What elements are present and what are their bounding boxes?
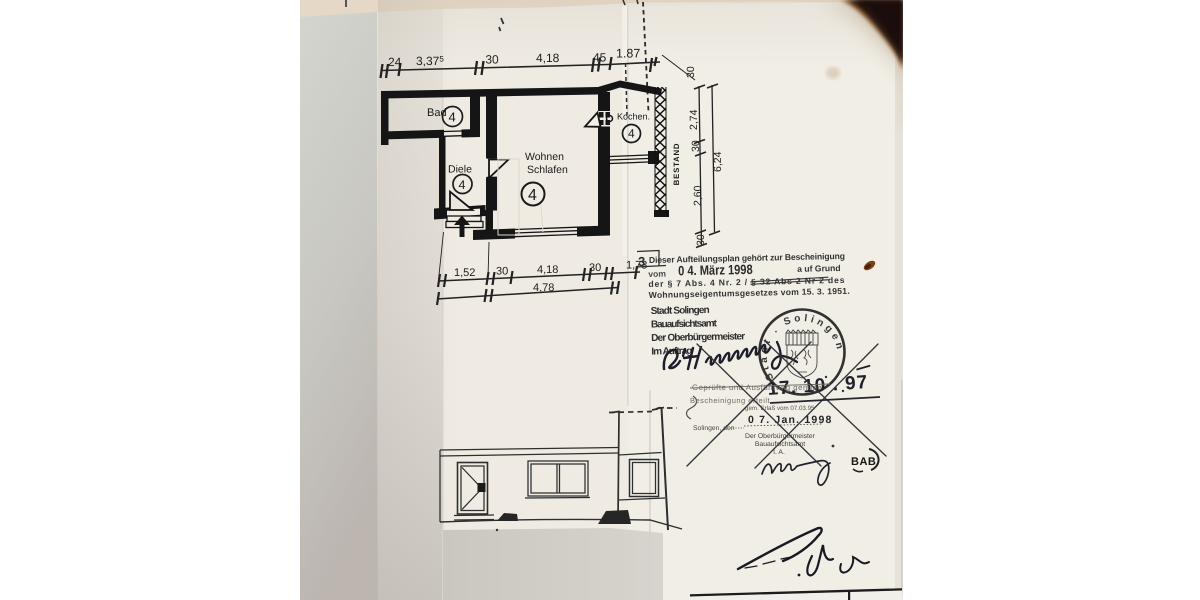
svg-text:a uf Grund: a uf Grund <box>797 263 841 274</box>
svg-text:.30: .30 <box>482 53 499 67</box>
svg-text:Der Oberbürgermeister: Der Oberbürgermeister <box>651 331 745 344</box>
svg-text:Bauaufsichtsamt: Bauaufsichtsamt <box>651 318 718 330</box>
svg-text:Im Auftrag: Im Auftrag <box>651 346 692 358</box>
svg-text:4: 4 <box>449 110 456 125</box>
svg-text:2,60: 2,60 <box>692 185 704 206</box>
svg-text:Kochen.: Kochen. <box>617 112 650 122</box>
svg-text:Schlafen: Schlafen <box>527 164 568 176</box>
svg-text:30: 30 <box>685 66 697 78</box>
svg-text:Stadt Solingen: Stadt Solingen <box>651 305 710 317</box>
svg-text:45: 45 <box>593 51 607 65</box>
svg-text:30: 30 <box>589 262 601 274</box>
svg-text:30: 30 <box>695 234 707 246</box>
svg-text:30: 30 <box>496 266 508 278</box>
svg-text:BESTAND: BESTAND <box>672 143 681 186</box>
svg-text:4,78: 4,78 <box>533 282 554 294</box>
svg-text:Solingen, den: Solingen, den <box>693 425 735 432</box>
svg-text:BAB: BAB <box>851 456 876 468</box>
svg-text:4,18: 4,18 <box>537 264 558 276</box>
svg-text:2,74: 2,74 <box>688 109 700 130</box>
svg-text:30: 30 <box>690 140 702 152</box>
svg-text:gem. Erlaß vom 07.03.95: gem. Erlaß vom 07.03.95 <box>745 405 815 412</box>
svg-text:vom: vom <box>648 269 666 279</box>
svg-text:0 4. März 1998: 0 4. März 1998 <box>678 262 753 279</box>
svg-text:4: 4 <box>459 178 466 192</box>
svg-text:Diele: Diele <box>448 164 472 176</box>
svg-text:4,18: 4,18 <box>536 51 560 65</box>
svg-text:6,24: 6,24 <box>712 151 724 172</box>
svg-text:1.87: 1.87 <box>616 47 640 61</box>
svg-text:I. A.: I. A. <box>773 449 785 456</box>
svg-text:Der Oberbürgermeister: Der Oberbürgermeister <box>745 433 816 440</box>
svg-text:0 7. Jan. 1998: 0 7. Jan. 1998 <box>748 414 833 426</box>
svg-text:1,52: 1,52 <box>454 267 475 279</box>
svg-text:4: 4 <box>628 127 635 141</box>
svg-text:Wohnen: Wohnen <box>525 151 564 163</box>
svg-text:4: 4 <box>528 187 537 204</box>
svg-text:24: 24 <box>388 55 402 69</box>
